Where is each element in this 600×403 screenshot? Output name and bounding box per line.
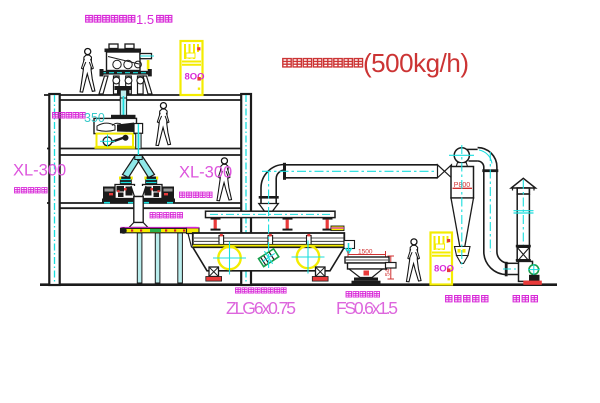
- svg-text:1.5: 1.5: [136, 12, 154, 27]
- svg-text:XL-300: XL-300: [13, 162, 66, 180]
- svg-text:XL-300: XL-300: [179, 164, 232, 182]
- svg-text:ZLG6x0.75: ZLG6x0.75: [226, 298, 296, 318]
- svg-text:8OO: 8OO: [185, 72, 205, 83]
- svg-text:350: 350: [84, 111, 105, 125]
- svg-text:FS0.6x1.5: FS0.6x1.5: [336, 298, 398, 318]
- svg-text:(500kg/h): (500kg/h): [363, 48, 469, 78]
- svg-text:1500: 1500: [358, 249, 373, 256]
- svg-text:8OO: 8OO: [434, 264, 454, 275]
